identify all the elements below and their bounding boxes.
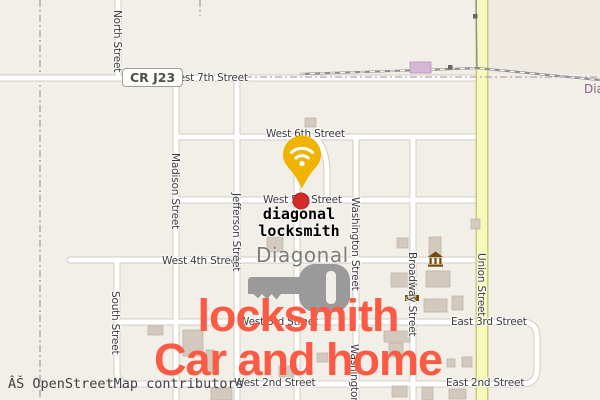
- railway-marker: [448, 65, 453, 70]
- railway-name-label: Dia: [584, 82, 600, 96]
- wifi-icon: [292, 148, 313, 166]
- marker-caption-line2: locksmith: [149, 223, 449, 240]
- street-label-west-6th: West 6th Street: [266, 128, 345, 140]
- farmland-area: [488, 0, 600, 74]
- overlay-caption: locksmith Car and home: [0, 294, 596, 382]
- marker-caption: diagonal locksmith: [149, 206, 449, 239]
- railway-marker: [473, 14, 478, 19]
- route-badge: CR J23: [122, 68, 183, 87]
- map-canvas[interactable]: West 7th Street West 6th Street West 5th…: [0, 0, 600, 400]
- place-label: Diagonal: [256, 243, 349, 267]
- locksmith-pin[interactable]: [283, 136, 321, 189]
- station-building: [410, 62, 431, 73]
- street-label-north: North Street: [111, 10, 123, 72]
- overlay-caption-line1: locksmith: [0, 294, 596, 338]
- osm-attribution[interactable]: ÂŠ OpenStreetMap contributors: [8, 376, 244, 392]
- railway-line: [300, 0, 600, 80]
- marker-caption-line1: diagonal: [149, 206, 449, 223]
- museum-icon: [428, 252, 443, 267]
